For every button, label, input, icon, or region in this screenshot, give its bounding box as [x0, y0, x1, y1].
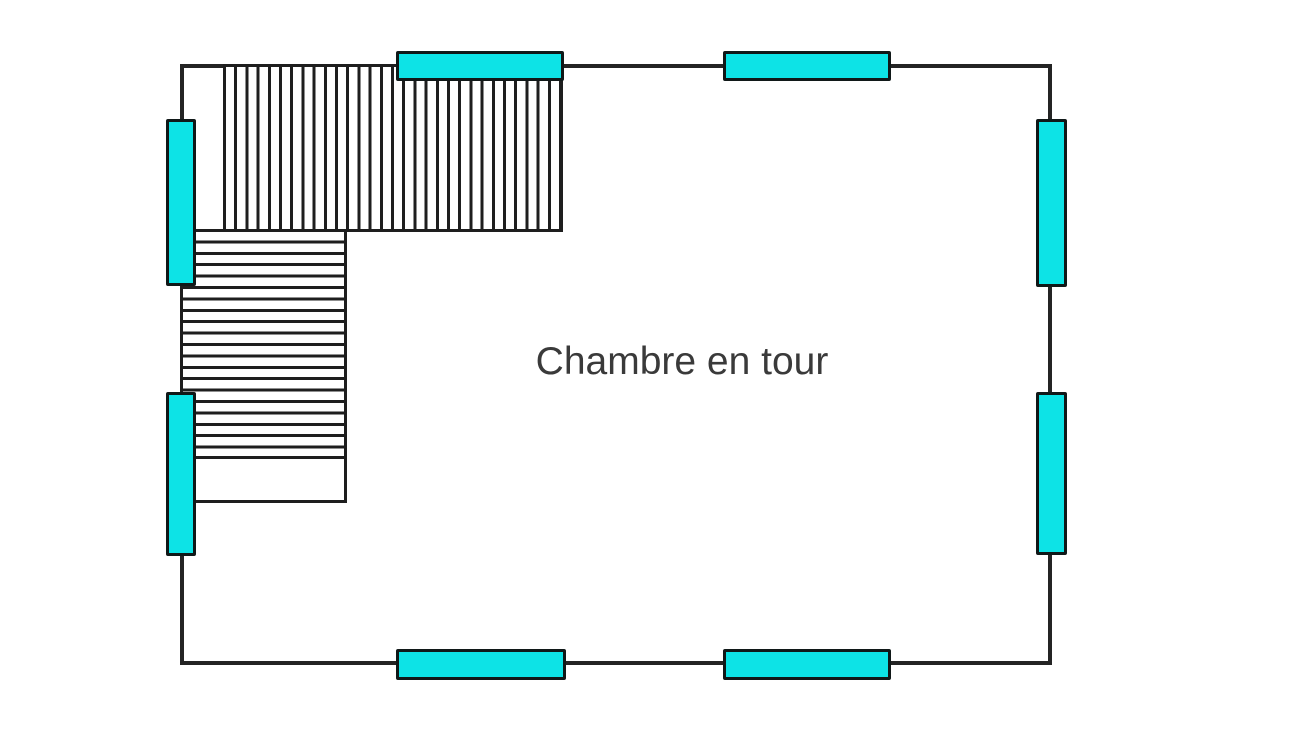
stairs-lower-flight — [180, 229, 347, 503]
window-top-left — [396, 51, 564, 81]
window-top-right — [723, 51, 891, 81]
window-bottom-left — [396, 649, 566, 680]
stairs-upper-flight — [223, 64, 563, 232]
floor-plan-canvas: Chambre en tour — [0, 0, 1296, 729]
window-bottom-right — [723, 649, 891, 680]
stairs-lower-hatch — [183, 232, 344, 459]
room-label: Chambre en tour — [536, 340, 829, 384]
window-right-lower — [1036, 392, 1067, 555]
window-left-lower — [166, 392, 196, 556]
window-left-upper — [166, 119, 196, 286]
window-right-upper — [1036, 119, 1067, 287]
